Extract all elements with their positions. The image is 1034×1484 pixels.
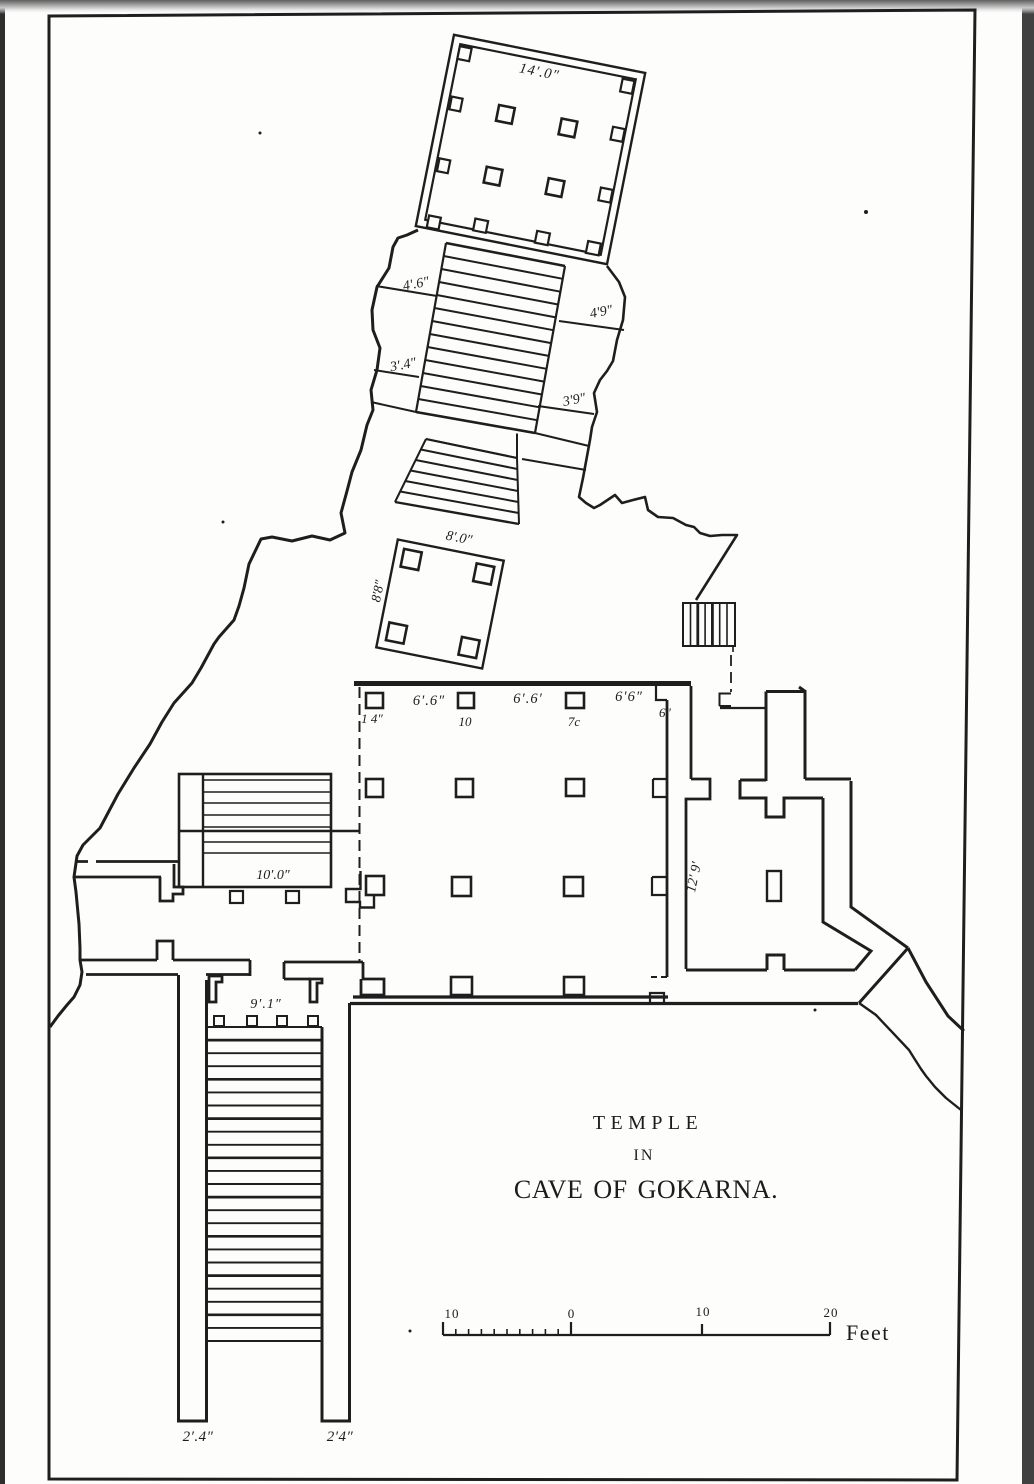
svg-text:0: 0 [568, 1306, 575, 1321]
svg-text:Feet: Feet [846, 1320, 890, 1345]
svg-text:10: 10 [696, 1304, 711, 1319]
svg-text:9′.1″: 9′.1″ [250, 997, 281, 1012]
svg-text:1 4″: 1 4″ [361, 711, 383, 726]
svg-text:6′.6″: 6′.6″ [413, 693, 445, 709]
svg-text:CAVE OF GOKARNA.: CAVE OF GOKARNA. [514, 1175, 778, 1204]
svg-text:6″: 6″ [659, 705, 672, 720]
svg-text:10: 10 [445, 1306, 460, 1321]
svg-text:10: 10 [459, 714, 473, 729]
svg-text:2′4″: 2′4″ [327, 1429, 354, 1445]
svg-text:2′.4″: 2′.4″ [183, 1429, 214, 1445]
svg-text:10′.0″: 10′.0″ [256, 868, 290, 883]
svg-text:6′6″: 6′6″ [615, 689, 643, 705]
svg-text:TEMPLE: TEMPLE [593, 1112, 703, 1134]
svg-text:20: 20 [824, 1305, 839, 1320]
svg-text:6′.6′: 6′.6′ [513, 691, 542, 707]
svg-text:IN: IN [634, 1147, 655, 1164]
svg-text:7c: 7c [568, 714, 581, 729]
